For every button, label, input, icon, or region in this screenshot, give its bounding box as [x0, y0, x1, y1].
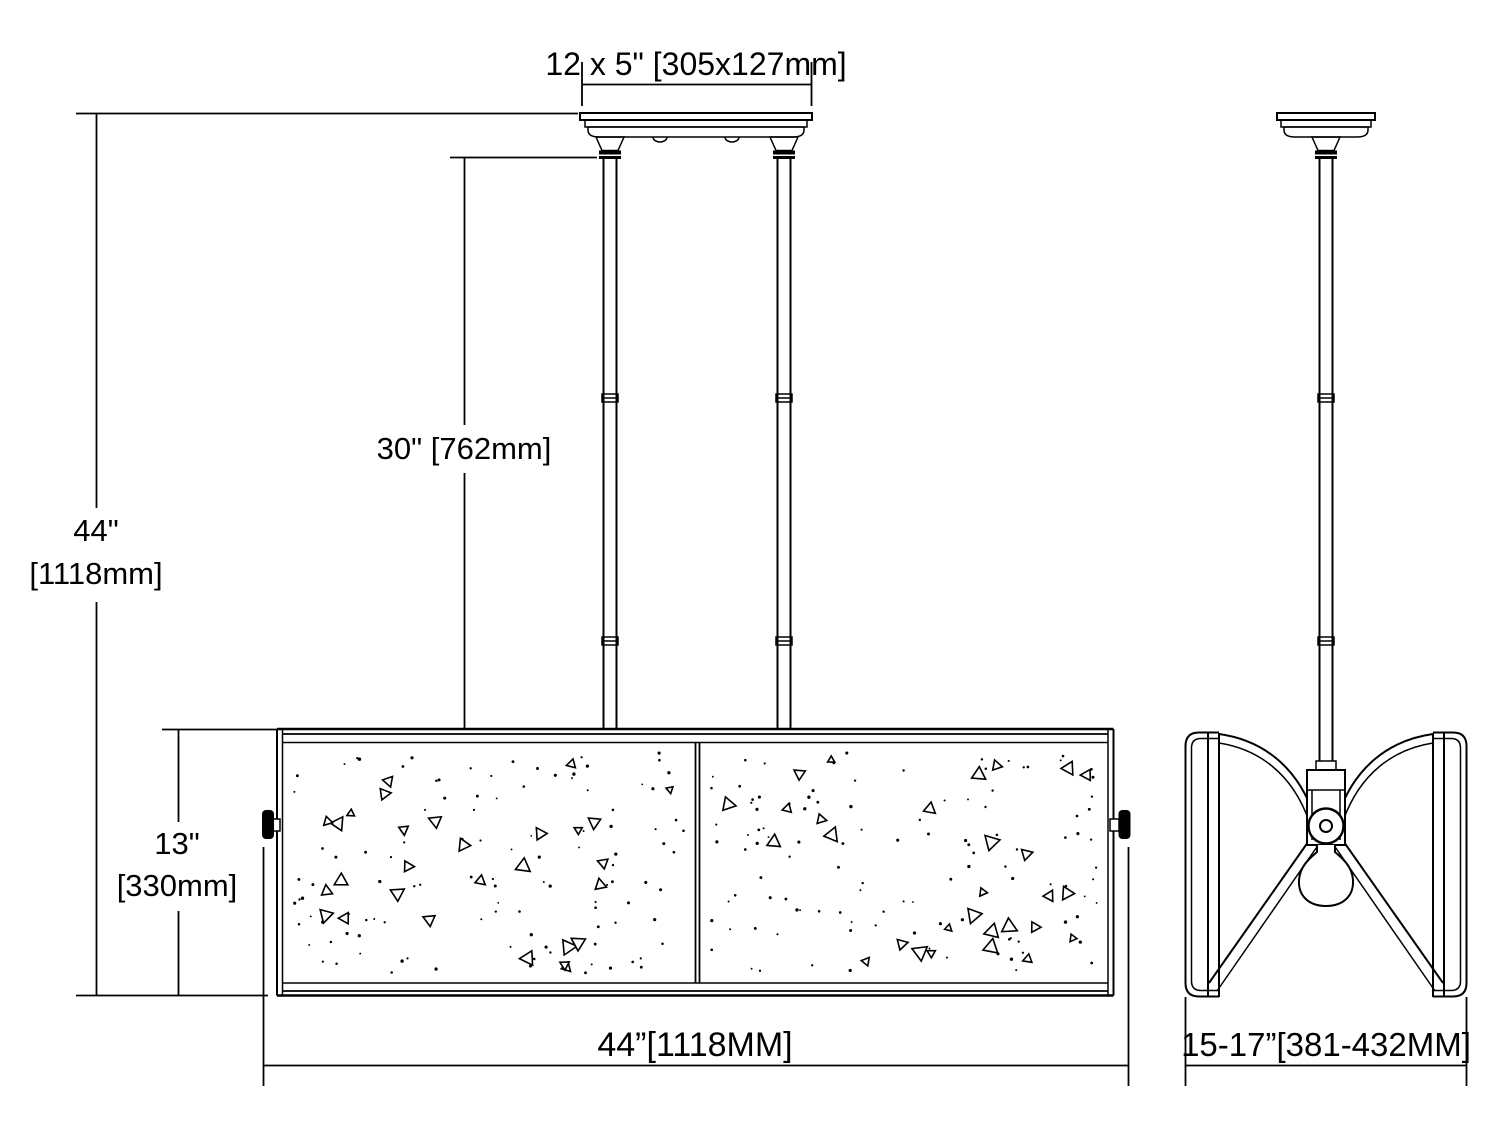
dim-overall-height: 44" [1118mm] [29, 114, 578, 996]
dim-side-width: 15-17”[381-432MM] [1181, 997, 1471, 1086]
overall-height-label-mm: [1118mm] [29, 556, 162, 591]
side-view: 15-17”[381-432MM] [1181, 113, 1471, 1086]
dim-canopy-width: 12 x 5" [305x127mm] [545, 46, 846, 106]
shade-height-label-in: 13" [154, 826, 200, 861]
arm-left-outer [1209, 835, 1313, 983]
shade-width-label: 44”[1118MM] [597, 1026, 792, 1064]
dimension-drawing-page: 12 x 5" [305x127mm] 44" [1118mm] 30" [76… [0, 0, 1500, 1136]
side-width-label: 15-17”[381-432MM] [1181, 1026, 1471, 1063]
strap-right-inner [1343, 743, 1433, 821]
front-shade [262, 729, 1131, 996]
canopy-width-label: 12 x 5" [305x127mm] [545, 46, 846, 82]
front-rod-left [596, 137, 624, 728]
dim-rod-length: 30" [762mm] [377, 158, 597, 730]
front-rod-right [770, 137, 798, 728]
rod-flange [1316, 761, 1336, 770]
side-canopy [1277, 113, 1375, 137]
shade-height-label-mm: [330mm] [117, 868, 238, 903]
dim-shade-height: 13" [330mm] [76, 730, 277, 996]
overall-height-label-in: 44" [73, 513, 119, 548]
center-bolt [1309, 809, 1344, 844]
front-view: 12 x 5" [305x127mm] 44" [1118mm] 30" [76… [29, 46, 1130, 1086]
shade-panel-right-texture [710, 751, 1097, 972]
side-rod [1312, 137, 1340, 770]
arm-right-outer [1339, 835, 1443, 983]
strap-left-inner [1219, 743, 1309, 821]
side-bulb [1299, 845, 1353, 906]
technical-drawing: 12 x 5" [305x127mm] 44" [1118mm] 30" [76… [0, 0, 1500, 1136]
rod-length-label: 30" [762mm] [377, 431, 552, 466]
shade-panel-left-texture [293, 752, 685, 975]
